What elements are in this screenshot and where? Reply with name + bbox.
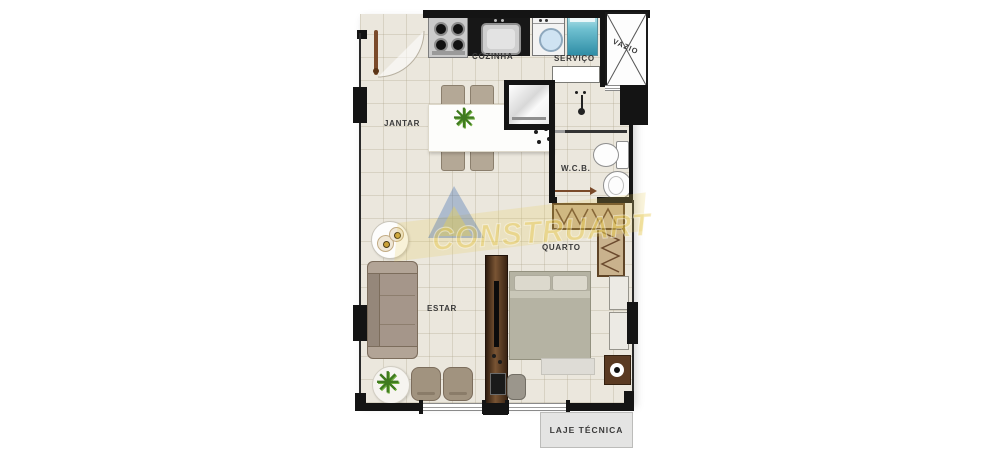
bed-end-rug: [541, 358, 595, 375]
round-side-table: [371, 221, 409, 259]
entry-door-arc: [378, 31, 426, 79]
decor-ring-icon: [610, 363, 624, 377]
servico-label: SERVIÇO: [554, 54, 595, 63]
door-handle-icon: [373, 68, 379, 74]
vazio-shaft: VAZIO: [605, 12, 648, 87]
window-bottom: [507, 403, 568, 411]
floor-plant-icon: ✳: [376, 366, 399, 399]
laje-tecnica-box: LAJE TÉCNICA: [540, 412, 633, 448]
shower-glass-rail: [555, 130, 565, 133]
double-bed: [509, 271, 591, 360]
window-bottom: [421, 403, 484, 411]
shower-box: [509, 85, 550, 124]
wall-bath-bottom: [549, 197, 557, 203]
pillar: [353, 305, 367, 341]
jantar-label: JANTAR: [384, 119, 420, 128]
pillar: [627, 302, 638, 344]
washing-machine-icon: [532, 16, 565, 56]
window-vazio: [605, 85, 620, 91]
nightstand: [609, 276, 629, 310]
apartment-floorplan: ✳ ✳: [350, 0, 662, 456]
sliding-door-icon: [553, 190, 591, 192]
wardrobe-top: [552, 203, 625, 230]
service-door: [552, 66, 600, 83]
pillar: [353, 87, 367, 123]
laundry-tank-icon: [567, 14, 598, 56]
gray-pouf: [507, 374, 526, 400]
wall-bath-right: [629, 123, 633, 203]
shower-glass-partition: [565, 130, 627, 133]
table-plant-icon: ✳: [453, 103, 475, 134]
armchair-pouf: [443, 367, 473, 401]
washbasin-icon: [603, 171, 632, 200]
tv-panel: [485, 255, 508, 405]
tv-cabinet: [490, 373, 506, 395]
wall-bath-bottom: [597, 197, 633, 203]
wood-side-unit: [604, 355, 631, 385]
sofa: [367, 261, 418, 359]
toilet-bowl-icon: [593, 143, 619, 167]
shower-drain-icon: [578, 108, 585, 115]
sliding-door-arrow-icon: [590, 187, 597, 195]
column-tv: [483, 403, 508, 415]
tv-icon: [494, 281, 499, 347]
floorplan-canvas: { "plan": { "labels": { "cozinha": "COZI…: [0, 0, 1000, 456]
armchair-pouf: [411, 367, 441, 401]
wcb-label: W.C.B.: [561, 164, 591, 173]
wall-bath-left: [549, 80, 555, 203]
cozinha-label: COZINHA: [472, 52, 513, 61]
wardrobe-side: [597, 228, 625, 277]
stove-icon: [428, 16, 468, 58]
nightstand: [609, 312, 629, 350]
quarto-label: QUARTO: [542, 243, 581, 252]
estar-label: ESTAR: [427, 304, 457, 313]
laje-tecnica-label: LAJE TÉCNICA: [550, 425, 624, 435]
wall-corner-right: [620, 85, 648, 125]
kitchen-counter: [468, 16, 530, 56]
kitchen-sink-icon: [481, 23, 521, 55]
